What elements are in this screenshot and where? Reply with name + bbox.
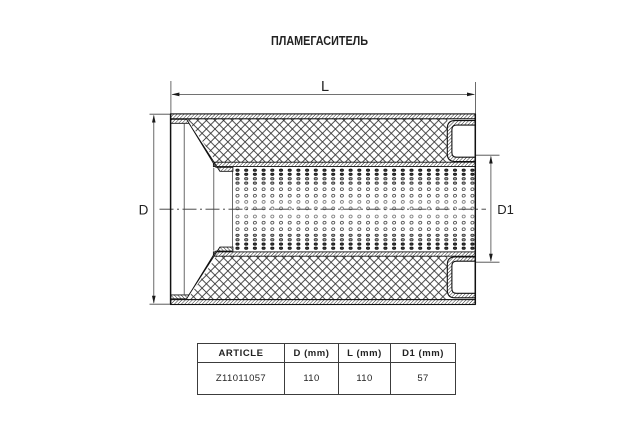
svg-text:ПЛАМЕГАСИТЕЛЬ: ПЛАМЕГАСИТЕЛЬ: [271, 33, 368, 48]
svg-text:D: D: [139, 203, 149, 218]
svg-text:D1: D1: [497, 202, 514, 217]
svg-text:L: L: [321, 79, 329, 95]
